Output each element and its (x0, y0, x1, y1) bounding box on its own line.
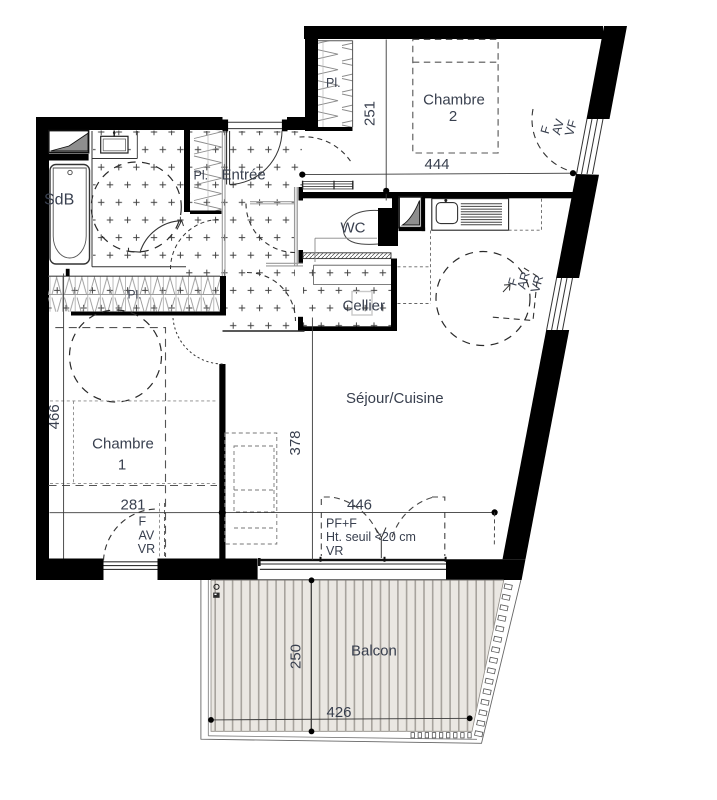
svg-text:378: 378 (287, 430, 304, 455)
svg-text:Pl.: Pl. (194, 169, 209, 183)
svg-text:Ht. seuil ˂20 cm: Ht. seuil ˂20 cm (326, 530, 416, 544)
svg-text:Pl.: Pl. (128, 288, 142, 302)
svg-text:Cellier: Cellier (343, 298, 386, 315)
svg-text:1: 1 (118, 457, 126, 474)
svg-text:466: 466 (46, 404, 63, 429)
svg-text:281: 281 (121, 497, 146, 514)
svg-text:Balcon: Balcon (351, 643, 397, 660)
svg-text:VF: VF (562, 118, 580, 138)
svg-text:PF+F: PF+F (326, 516, 357, 530)
svg-text:250: 250 (288, 644, 305, 669)
svg-text:444: 444 (425, 156, 450, 173)
svg-text:426: 426 (327, 704, 352, 721)
svg-text:Chambre: Chambre (92, 436, 154, 453)
svg-text:Chambre: Chambre (423, 92, 485, 109)
svg-text:VR: VR (326, 544, 343, 558)
svg-text:446: 446 (347, 497, 372, 514)
svg-text:SdB: SdB (44, 192, 74, 209)
svg-text:Pl.: Pl. (326, 76, 341, 90)
svg-text:Séjour/Cuisine: Séjour/Cuisine (346, 390, 444, 407)
svg-text:Entrée: Entrée (222, 167, 266, 184)
svg-text:2: 2 (449, 108, 457, 125)
svg-text:AV: AV (139, 528, 155, 542)
svg-text:F: F (139, 515, 147, 529)
svg-text:WC: WC (341, 220, 366, 237)
svg-text:VR: VR (138, 542, 155, 556)
svg-text:251: 251 (362, 101, 379, 126)
